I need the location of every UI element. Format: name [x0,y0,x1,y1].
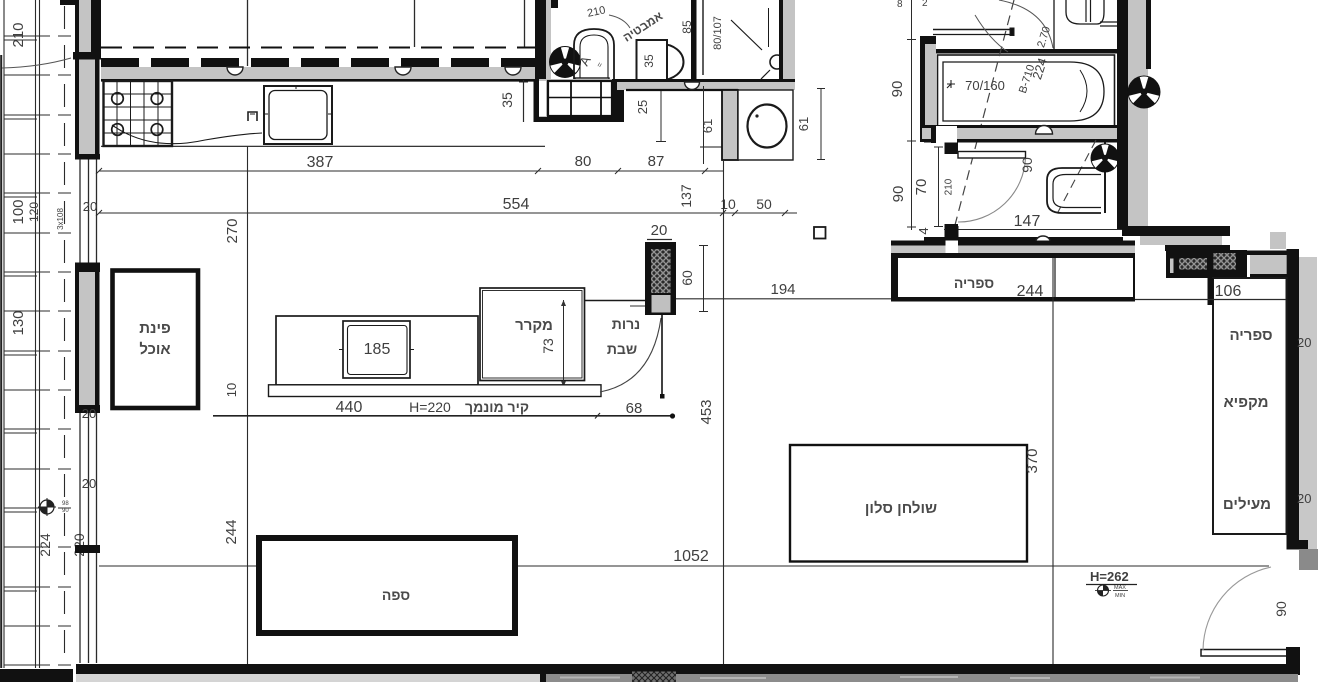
svg-text:224: 224 [37,533,53,557]
svg-text:61: 61 [700,119,715,133]
svg-text:90: 90 [1273,601,1289,617]
svg-text:194: 194 [770,281,795,298]
svg-text:98: 98 [62,501,69,507]
svg-text:8: 8 [897,0,903,10]
svg-text:10: 10 [720,196,736,212]
svg-text:25: 25 [635,100,650,114]
svg-text:185: 185 [364,341,391,358]
svg-text:80/107: 80/107 [712,16,724,50]
svg-text:מקפיא: מקפיא [1223,394,1268,411]
svg-text:106: 106 [1215,283,1242,300]
svg-text:147: 147 [1014,213,1041,230]
svg-text:137: 137 [678,184,694,208]
svg-text:453: 453 [698,399,715,424]
svg-text:210: 210 [944,178,955,195]
svg-text:פינת: פינת [139,320,171,337]
svg-text:90: 90 [1019,157,1035,173]
svg-text:73: 73 [540,338,556,354]
svg-text:554: 554 [503,196,530,213]
svg-text:ספריה: ספריה [1229,327,1272,344]
svg-text:ספה: ספה [382,587,410,603]
svg-text:35: 35 [642,54,656,68]
svg-text:10: 10 [224,383,239,397]
svg-text:שבת: שבת [607,341,637,357]
svg-text:244: 244 [1017,283,1044,300]
svg-text:35: 35 [499,92,515,108]
svg-text:120: 120 [27,202,41,222]
svg-text:70/160: 70/160 [965,78,1005,93]
svg-text:2: 2 [922,0,928,9]
svg-text:90: 90 [890,186,907,203]
svg-text:90: 90 [62,508,69,514]
svg-text:210: 210 [10,22,27,47]
svg-text:220: 220 [71,533,87,557]
svg-text:20: 20 [1297,491,1311,506]
svg-text:20: 20 [82,476,96,491]
svg-text:244: 244 [223,519,240,544]
svg-text:70: 70 [913,179,930,196]
svg-text:אוכל: אוכל [139,341,170,358]
svg-text:100: 100 [10,199,27,224]
svg-text:מעילים: מעילים [1223,496,1271,513]
svg-text:H=262: H=262 [1090,569,1129,584]
svg-text:3x108: 3x108 [56,208,65,230]
svg-text:1052: 1052 [673,548,709,565]
svg-text:20: 20 [651,222,668,239]
svg-text:שולחן סלון: שולחן סלון [865,500,937,517]
svg-text:נרות: נרות [612,316,640,332]
svg-text:ספריה: ספריה [954,275,994,291]
svg-text:20: 20 [83,199,97,214]
svg-text:20: 20 [1297,335,1311,350]
svg-text:61: 61 [796,117,811,131]
svg-text:MIN: MIN [1115,593,1125,599]
svg-text:440: 440 [336,399,363,416]
svg-text:370: 370 [1024,448,1041,473]
svg-text:80: 80 [575,153,592,170]
svg-text:50: 50 [756,196,772,212]
svg-text:68: 68 [626,400,643,417]
svg-text:H=220: H=220 [409,399,451,415]
svg-text:מקרר: מקרר [515,317,553,334]
svg-text:קיר מונמך: קיר מונמך [465,399,529,415]
svg-text:87: 87 [648,153,665,170]
svg-text:4: 4 [916,227,931,234]
svg-text:130: 130 [10,310,27,335]
svg-text:60: 60 [679,270,695,286]
svg-text:90: 90 [889,81,906,98]
svg-text:270: 270 [224,218,241,243]
svg-text:387: 387 [307,154,334,171]
